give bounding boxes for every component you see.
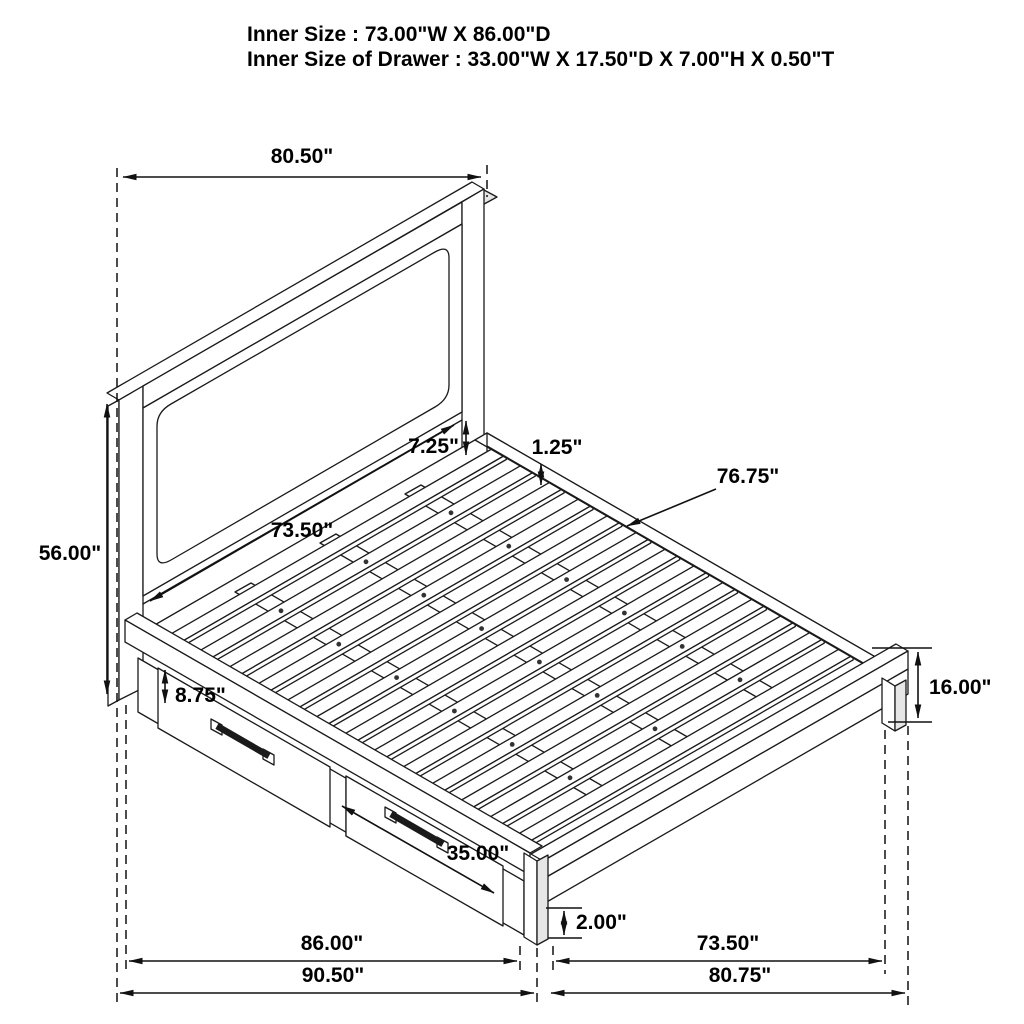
dim-footboard-inner-width-label: 73.50" [697,932,760,955]
screw-dot [421,593,426,598]
dim-deck-length: 76.75" [627,465,779,526]
dim-foot-clearance: 2.00" [546,908,627,938]
screw-dot [364,559,369,564]
screw-dot [449,510,454,515]
screw-dot [336,642,341,647]
front-leg [524,853,548,945]
screw-dot [537,660,542,665]
title-block: Inner Size : 73.00"W X 86.00"D Inner Siz… [247,23,834,71]
dim-headboard-width-label: 80.50" [271,145,334,168]
dim-headboard-width: 80.50" [123,145,481,177]
screw-dot [510,742,515,747]
dim-overall-width-label: 80.75" [709,964,772,987]
screw-dot [279,608,284,613]
drawer-inner-size-text: Inner Size of Drawer : 33.00"W X 17.50"D… [247,48,834,71]
dim-footboard-height-label: 16.00" [929,676,992,699]
dim-foot-clearance-label: 2.00" [576,911,627,934]
screw-dot [394,675,399,680]
screw-dot [622,611,627,616]
dim-footboard-inner-width: 73.50" [556,932,882,961]
dim-storage-length-label: 86.00" [301,932,364,955]
dim-headboard-height: 56.00" [39,404,107,694]
dim-overall-length: 90.50" [120,964,534,993]
screw-dot [564,577,569,582]
dim-storage-length: 86.00" [129,932,517,961]
right-leg [882,678,906,731]
dim-panel-gap-label: 7.25" [408,435,459,458]
dim-overall-length-label: 90.50" [302,964,365,987]
inner-size-text: Inner Size : 73.00"W X 86.00"D [247,23,551,46]
screw-dot [506,544,511,549]
dim-deck-length-label: 76.75" [717,465,780,488]
screw-dot [479,626,484,631]
screw-dot [653,726,658,731]
screw-dot [452,709,457,714]
bed-technical-drawing: Inner Size : 73.00"W X 86.00"D Inner Siz… [0,0,1024,1024]
dim-slat-thickness-label: 1.25" [532,436,583,459]
dim-headboard-inner-width-label: 73.50" [271,519,334,542]
dim-headboard-height-label: 56.00" [39,542,102,565]
screw-dot [595,693,600,698]
dim-drawer-width-label: 35.00" [447,842,510,865]
dim-drawer-height-label: 8.75" [175,684,226,707]
screw-dot [738,677,743,682]
bed-dimension-diagram-page: Inner Size : 73.00"W X 86.00"D Inner Siz… [0,0,1024,1024]
screw-dot [680,644,685,649]
headboard-left-post [119,386,143,700]
screw-dot [568,775,573,780]
dim-overall-width: 80.75" [551,964,905,993]
